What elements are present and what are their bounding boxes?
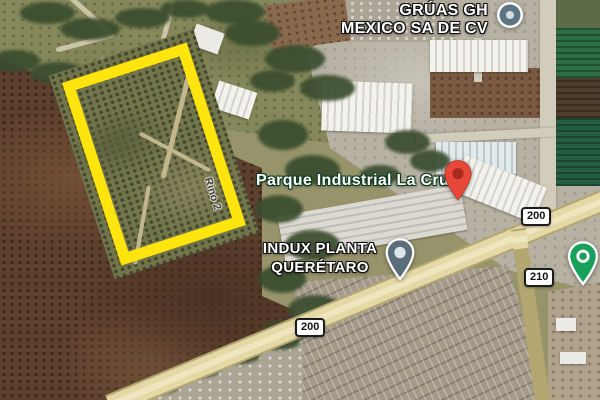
poi-label-line: MEXICO SA DE CV	[330, 20, 488, 38]
tree-cluster	[225, 20, 280, 46]
tree-cluster	[160, 0, 210, 18]
plowed-field	[556, 78, 600, 118]
tree-cluster	[255, 195, 303, 223]
satellite-map[interactable]: Rino 2 GRÚAS GH MEXICO SA DE CV Parque I…	[0, 0, 600, 400]
route-shield-210: 210	[524, 268, 554, 287]
route-shield-200-west: 200	[295, 318, 325, 337]
tree-cluster	[60, 18, 120, 40]
warehouse-building	[430, 40, 528, 72]
teardrop-pin-indux[interactable]	[384, 238, 416, 281]
tree-cluster	[250, 70, 295, 92]
tree-cluster	[300, 75, 355, 101]
red-map-pin-parque[interactable]	[443, 158, 473, 203]
dirt-patch	[430, 68, 542, 118]
poi-label-line: GRÚAS GH	[330, 2, 488, 20]
crop-field	[556, 118, 600, 186]
route-shield-200: 200	[521, 207, 551, 226]
field-patch	[556, 0, 600, 28]
small-building	[556, 318, 576, 331]
poi-label-line: QUERÉTARO	[254, 258, 386, 277]
small-building	[560, 352, 586, 364]
crop-field	[556, 28, 600, 78]
green-park-pin[interactable]	[566, 241, 600, 286]
tree-cluster	[265, 45, 325, 73]
tree-cluster	[258, 120, 308, 150]
poi-label-gruas[interactable]: GRÚAS GH MEXICO SA DE CV	[330, 2, 488, 37]
poi-label-line: INDUX PLANTA	[254, 239, 386, 258]
poi-label-indux[interactable]: INDUX PLANTA QUERÉTARO	[254, 239, 386, 277]
business-circle-pin-gruas[interactable]	[496, 1, 524, 29]
poi-label-parque[interactable]: Parque Industrial La Cruz	[256, 172, 457, 190]
